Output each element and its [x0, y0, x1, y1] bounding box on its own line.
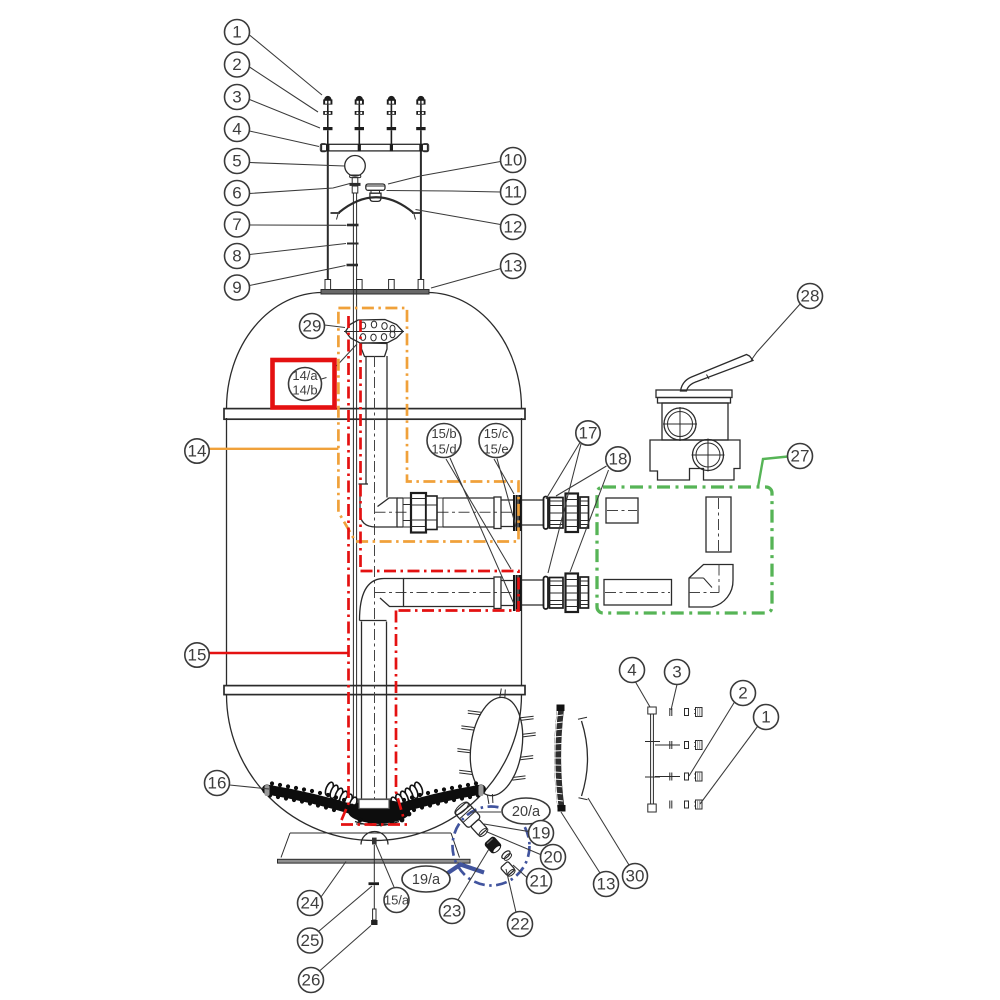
svg-text:14/b: 14/b [292, 383, 317, 398]
svg-text:5: 5 [232, 152, 241, 171]
svg-text:17: 17 [579, 424, 598, 443]
svg-text:11: 11 [504, 183, 522, 202]
svg-text:13: 13 [597, 875, 616, 894]
svg-text:9: 9 [232, 278, 241, 297]
svg-text:25: 25 [301, 931, 320, 950]
svg-text:20: 20 [544, 848, 563, 867]
svg-text:3: 3 [672, 663, 681, 682]
svg-text:1: 1 [232, 23, 241, 42]
svg-text:22: 22 [511, 915, 530, 934]
svg-text:27: 27 [791, 447, 810, 466]
svg-text:15/d: 15/d [431, 442, 456, 457]
svg-text:4: 4 [232, 120, 241, 139]
svg-text:14: 14 [188, 442, 207, 461]
svg-text:13: 13 [504, 257, 523, 276]
svg-text:1: 1 [761, 708, 770, 727]
svg-text:4: 4 [627, 661, 636, 680]
svg-text:16: 16 [208, 774, 227, 793]
svg-text:18: 18 [609, 450, 628, 469]
svg-text:6: 6 [232, 184, 241, 203]
svg-text:28: 28 [801, 287, 820, 306]
svg-text:8: 8 [232, 247, 241, 266]
svg-text:15: 15 [188, 646, 207, 665]
svg-text:24: 24 [301, 894, 320, 913]
svg-text:15/b: 15/b [431, 426, 456, 441]
svg-text:15/a: 15/a [384, 893, 410, 908]
svg-text:19: 19 [532, 824, 551, 843]
svg-text:19/a: 19/a [412, 872, 441, 888]
svg-text:29: 29 [303, 317, 322, 336]
svg-text:21: 21 [530, 872, 549, 891]
svg-text:20/a: 20/a [512, 804, 541, 820]
svg-text:3: 3 [232, 88, 241, 107]
svg-text:23: 23 [443, 902, 462, 921]
svg-text:15/c: 15/c [484, 426, 509, 441]
svg-text:7: 7 [232, 215, 241, 234]
svg-text:14/a: 14/a [292, 368, 318, 383]
svg-text:15/e: 15/e [483, 442, 508, 457]
svg-text:2: 2 [738, 684, 747, 703]
svg-text:30: 30 [626, 867, 645, 886]
svg-text:12: 12 [504, 218, 523, 237]
svg-text:26: 26 [302, 971, 321, 990]
svg-text:2: 2 [232, 55, 241, 74]
svg-text:10: 10 [504, 151, 523, 170]
